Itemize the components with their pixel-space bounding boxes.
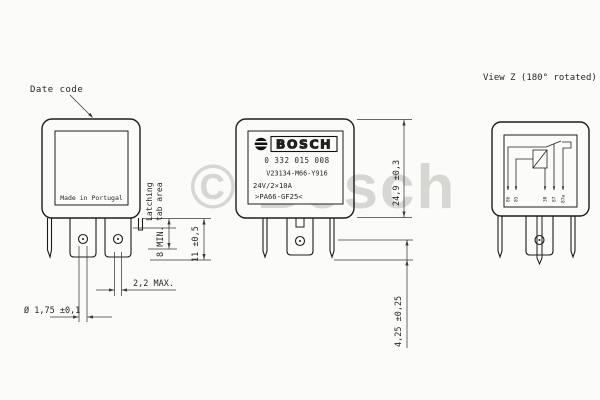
view-z [492,122,589,264]
left-wide-pin-2 [105,218,131,257]
dim-latch-min-label: 8 MIN. [156,226,166,257]
coil-lead-left [516,159,533,190]
viewz-pin-hole-center [539,239,541,241]
front-thin-pin-left [263,218,267,257]
bosch-logo-text: BOSCH [276,137,332,152]
bosch-anchor-icon [255,138,268,151]
terminal-label-87a: 87a [561,195,567,203]
front-pin-hole-center [299,240,301,242]
schematic-common-rail [508,147,546,190]
latch-area-label-line2: tab area [155,182,164,221]
dim-pin-offset-label: 4,25 ±0,25 [394,296,404,347]
dim-tab-thickness-label: 2,2 MAX. [133,279,174,289]
viewz-thin-pin-left [498,216,502,257]
terminal-label-30: 30 [543,196,549,202]
drawing-canvas: Date code Made in Portugal Ø 1,75 ±0,1 2… [0,0,600,400]
dim-height-label: 24,9 ±0,3 [392,160,402,206]
terminal-label-87: 87 [552,196,558,202]
type-code: V23134-M66-Y916 [266,170,327,178]
made-in-label: Made in Portugal [60,194,123,202]
contact-lead-nc [562,142,571,190]
pin1-hole-center [82,238,84,240]
front-thin-pin-right [330,218,334,257]
part-number: 0 332 015 008 [264,156,329,165]
latch-area-label-line1: Latching [145,182,154,221]
material-marking: >PA66-GF25< [255,192,303,201]
relay-circuit-schematic [507,141,571,190]
dim-pin-hole-label: Ø 1,75 ±0,1 [24,305,80,316]
viewz-thin-pin-right [571,216,575,257]
left-view [42,95,143,257]
left-wide-pin-1 [70,218,96,257]
terminal-label-85: 85 [514,196,520,202]
date-code-label: Date code [30,85,83,95]
front-center-pin-notch [296,218,304,227]
dim-pin-length-label: 11 ±0,5 [191,226,201,262]
technical-drawing-page: © Bosch [0,0,600,400]
left-edge-pin [48,218,52,257]
rating: 24V/2×10A [253,181,293,190]
pin2-hole-center [117,238,119,240]
switch-blade [546,141,561,147]
left-relay-body [42,119,140,218]
terminal-arrows [507,187,564,191]
date-code-leader [70,95,91,116]
view-z-title: View Z (180° rotated) [483,73,597,83]
terminal-label-86: 86 [506,196,512,202]
coil-diagonal [533,150,547,168]
